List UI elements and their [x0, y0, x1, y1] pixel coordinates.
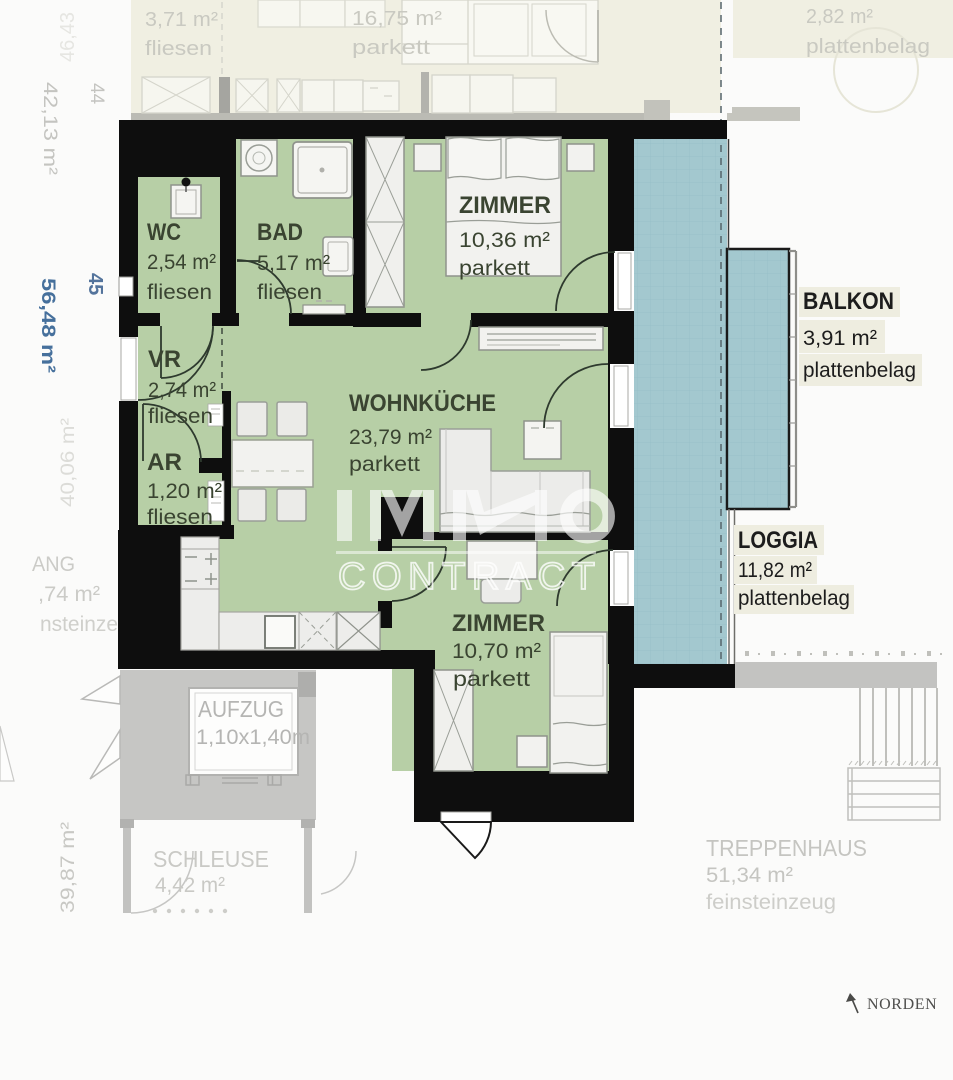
- svg-text:SCHLEUSE: SCHLEUSE: [153, 846, 269, 872]
- svg-text:VR: VR: [148, 346, 181, 373]
- svg-text:feinsteinzeug: feinsteinzeug: [706, 890, 836, 914]
- svg-text:TREPPENHAUS: TREPPENHAUS: [706, 835, 867, 861]
- svg-text:46,43: 46,43: [57, 12, 79, 62]
- svg-text:,74 m²: ,74 m²: [38, 582, 100, 606]
- svg-text:56,48 m²: 56,48 m²: [37, 278, 58, 373]
- svg-text:fliesen: fliesen: [147, 280, 212, 304]
- svg-text:40,06 m²: 40,06 m²: [58, 418, 79, 507]
- svg-text:39,87 m²: 39,87 m²: [58, 822, 79, 913]
- svg-text:45: 45: [84, 273, 106, 295]
- svg-text:4,42 m²: 4,42 m²: [155, 873, 225, 897]
- svg-text:BAD: BAD: [257, 219, 303, 246]
- svg-text:fliesen: fliesen: [148, 404, 213, 428]
- svg-text:plattenbelag: plattenbelag: [803, 358, 916, 382]
- svg-text:LOGGIA: LOGGIA: [738, 527, 818, 554]
- svg-text:fliesen: fliesen: [257, 280, 322, 304]
- svg-text:parkett: parkett: [453, 667, 530, 691]
- svg-text:parkett: parkett: [352, 36, 430, 59]
- svg-text:10,36 m²: 10,36 m²: [459, 228, 550, 252]
- svg-text:plattenbelag: plattenbelag: [806, 35, 930, 58]
- svg-text:BALKON: BALKON: [803, 288, 894, 315]
- svg-text:23,79 m²: 23,79 m²: [349, 425, 432, 449]
- svg-text:42,13 m²: 42,13 m²: [39, 82, 60, 175]
- svg-text:51,34 m²: 51,34 m²: [706, 863, 793, 887]
- svg-text:parkett: parkett: [459, 256, 530, 280]
- svg-text:WC: WC: [147, 219, 181, 246]
- svg-text:WOHNKÜCHE: WOHNKÜCHE: [349, 390, 496, 417]
- svg-text:ANG: ANG: [32, 552, 75, 576]
- svg-text:2,74 m²: 2,74 m²: [148, 378, 216, 402]
- svg-text:NORDEN: NORDEN: [867, 996, 937, 1013]
- svg-text:1,20 m²: 1,20 m²: [147, 479, 222, 503]
- svg-text:2,82 m²: 2,82 m²: [806, 5, 873, 28]
- svg-text:16,75 m²: 16,75 m²: [352, 7, 442, 30]
- svg-text:AUFZUG: AUFZUG: [198, 696, 284, 722]
- svg-text:3,71 m²: 3,71 m²: [145, 8, 218, 31]
- svg-text:nsteinze: nsteinze: [40, 612, 118, 636]
- svg-text:ZIMMER: ZIMMER: [459, 192, 551, 219]
- svg-text:plattenbelag: plattenbelag: [738, 586, 850, 610]
- svg-text:44: 44: [86, 83, 107, 105]
- svg-text:1,10x1,40m: 1,10x1,40m: [196, 726, 310, 749]
- svg-text:5,17 m²: 5,17 m²: [257, 251, 330, 275]
- svg-text:fliesen: fliesen: [147, 505, 213, 529]
- svg-text:11,82 m²: 11,82 m²: [738, 558, 812, 582]
- svg-text:parkett: parkett: [349, 452, 420, 476]
- svg-text:fliesen: fliesen: [145, 37, 212, 60]
- svg-text:ZIMMER: ZIMMER: [452, 610, 545, 637]
- svg-text:10,70 m²: 10,70 m²: [452, 639, 541, 663]
- svg-text:2,54 m²: 2,54 m²: [147, 250, 216, 274]
- svg-text:3,91 m²: 3,91 m²: [803, 326, 877, 350]
- svg-text:AR: AR: [147, 449, 182, 476]
